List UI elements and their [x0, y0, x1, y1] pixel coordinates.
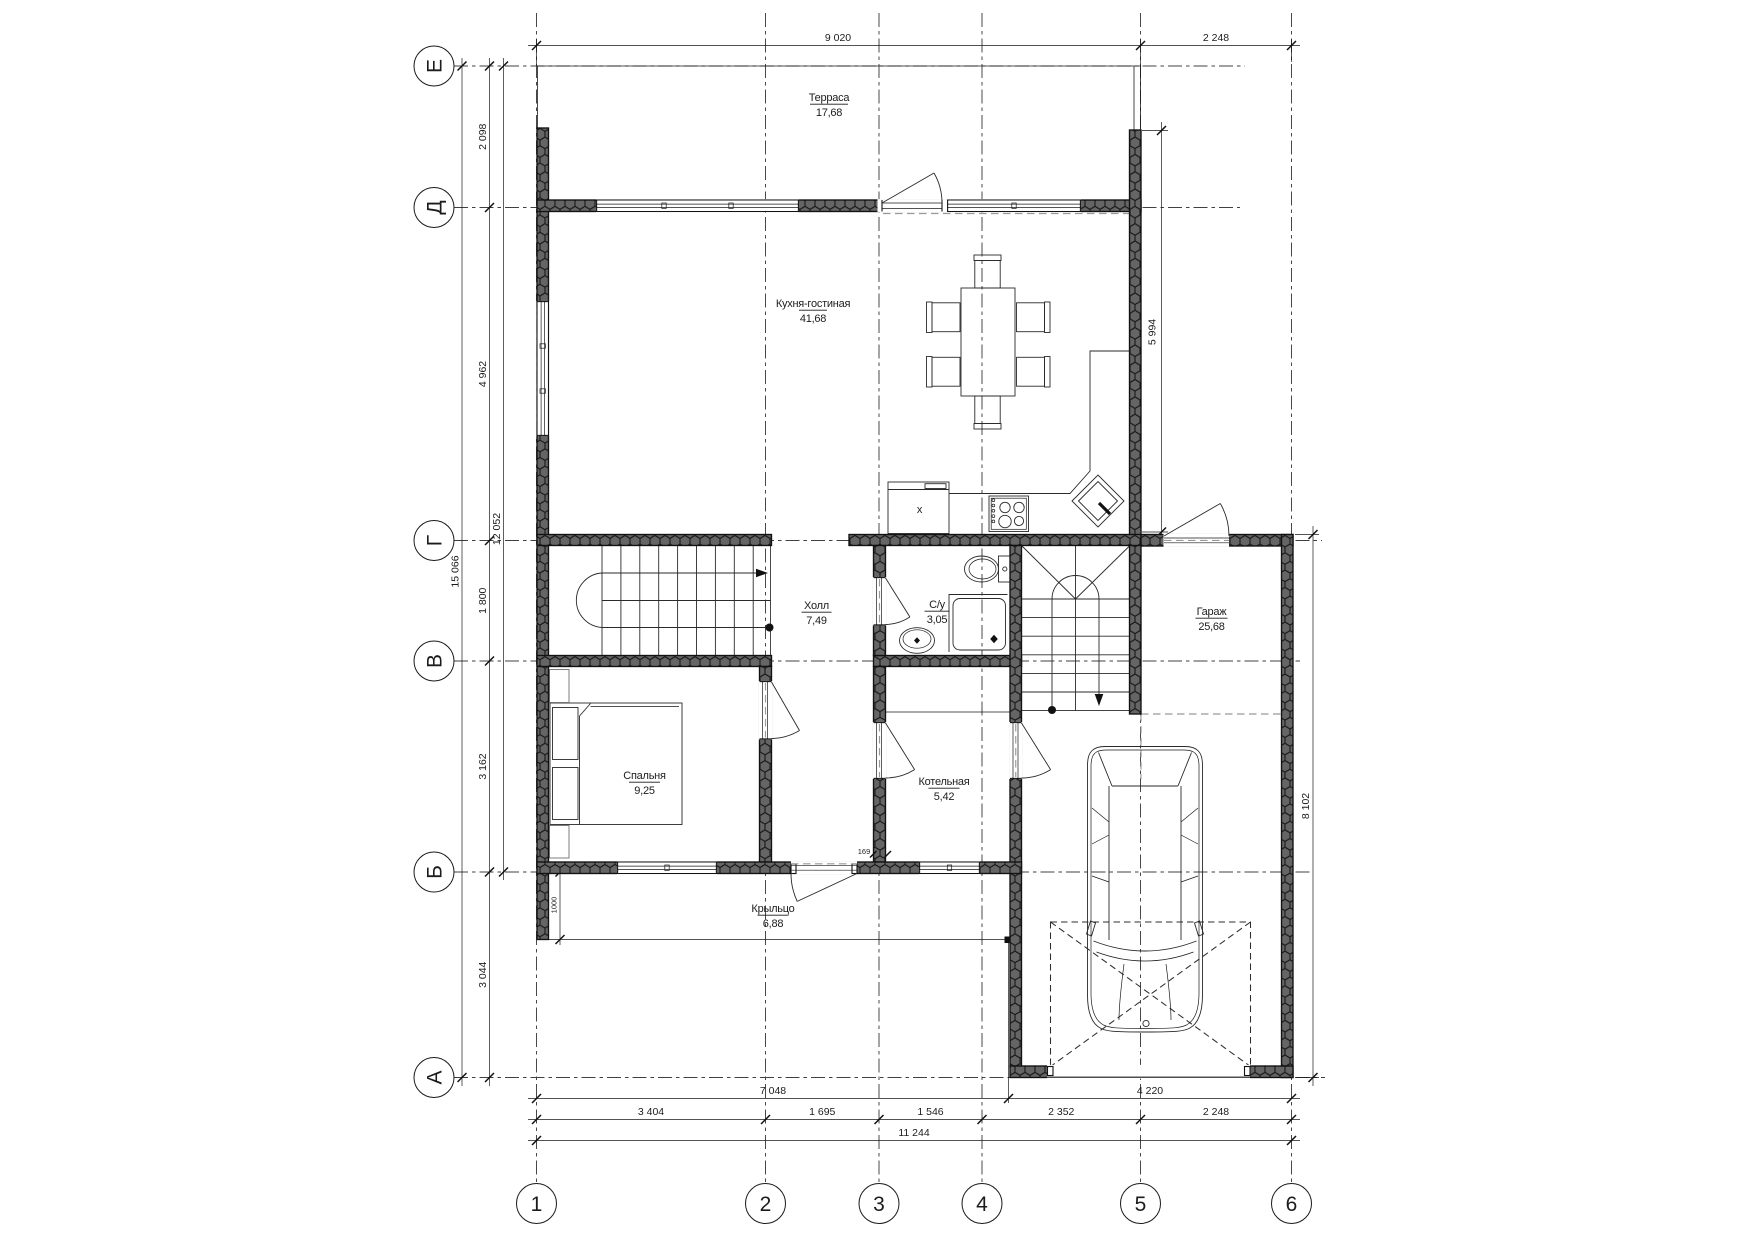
svg-text:6,88: 6,88 — [763, 918, 784, 930]
svg-text:1 695: 1 695 — [809, 1106, 835, 1118]
svg-text:9 020: 9 020 — [825, 32, 851, 44]
svg-text:25,68: 25,68 — [1198, 621, 1224, 633]
svg-text:4: 4 — [976, 1193, 988, 1216]
svg-text:2 352: 2 352 — [1048, 1106, 1074, 1118]
svg-text:11 244: 11 244 — [898, 1127, 929, 1139]
svg-text:5: 5 — [1135, 1193, 1147, 1216]
svg-text:1 800: 1 800 — [477, 587, 489, 613]
svg-text:Б: Б — [424, 865, 447, 879]
svg-text:5 994: 5 994 — [1147, 319, 1159, 345]
svg-text:3: 3 — [873, 1193, 885, 1216]
svg-text:12 052: 12 052 — [491, 513, 503, 545]
svg-text:1 546: 1 546 — [917, 1106, 943, 1118]
svg-text:7,49: 7,49 — [806, 615, 827, 627]
svg-text:Е: Е — [424, 59, 447, 73]
svg-text:6: 6 — [1286, 1193, 1298, 1216]
svg-text:1: 1 — [531, 1193, 543, 1216]
svg-text:4 962: 4 962 — [477, 361, 489, 387]
svg-text:4 220: 4 220 — [1137, 1085, 1163, 1097]
svg-text:Спальня: Спальня — [623, 770, 666, 782]
svg-text:41,68: 41,68 — [800, 313, 826, 325]
svg-text:Терраса: Терраса — [809, 92, 851, 104]
svg-text:x: x — [917, 504, 923, 516]
svg-text:3,05: 3,05 — [927, 614, 948, 626]
svg-text:15 066: 15 066 — [450, 555, 462, 587]
svg-text:А: А — [424, 1070, 447, 1084]
svg-text:С/у: С/у — [929, 599, 946, 611]
svg-text:3 404: 3 404 — [638, 1106, 664, 1118]
svg-text:Кухня-гостиная: Кухня-гостиная — [776, 298, 851, 310]
svg-text:Д: Д — [424, 200, 447, 214]
svg-text:9,25: 9,25 — [634, 785, 655, 797]
svg-text:2: 2 — [760, 1193, 772, 1216]
svg-text:2 248: 2 248 — [1203, 32, 1229, 44]
svg-text:В: В — [424, 654, 447, 668]
svg-text:5,42: 5,42 — [934, 791, 955, 803]
svg-text:169: 169 — [858, 847, 871, 856]
svg-text:7 048: 7 048 — [760, 1085, 786, 1097]
svg-text:8 102: 8 102 — [1300, 793, 1312, 819]
svg-text:3 044: 3 044 — [477, 961, 489, 987]
svg-text:3 162: 3 162 — [477, 753, 489, 779]
svg-text:Котельная: Котельная — [919, 776, 970, 788]
svg-text:Крыльцо: Крыльцо — [751, 903, 794, 915]
svg-text:1000: 1000 — [550, 897, 559, 914]
svg-text:Г: Г — [424, 535, 447, 546]
svg-text:17,68: 17,68 — [816, 107, 842, 119]
svg-text:Холл: Холл — [804, 600, 829, 612]
svg-text:2 248: 2 248 — [1203, 1106, 1229, 1118]
svg-text:Гараж: Гараж — [1197, 606, 1228, 618]
svg-text:2 098: 2 098 — [477, 123, 489, 149]
